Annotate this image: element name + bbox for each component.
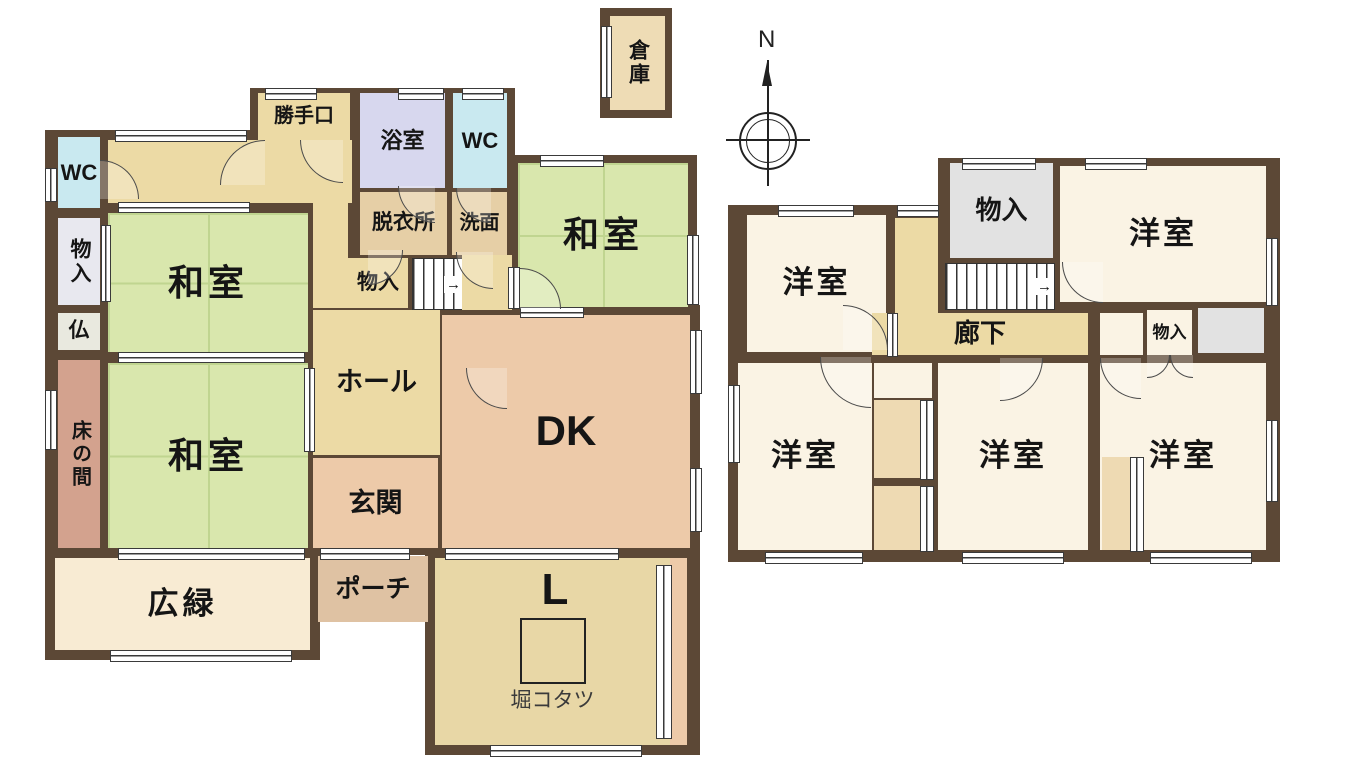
sliding-door-symbol	[118, 352, 305, 363]
room-hiroen: 広緑	[55, 558, 310, 650]
window-symbol	[45, 168, 57, 202]
closet-2f	[874, 400, 920, 478]
window-symbol	[1150, 552, 1252, 564]
window-symbol	[1085, 158, 1147, 170]
compass-arrowhead-icon	[762, 62, 772, 86]
closet-door-symbol	[920, 486, 934, 552]
closet-2f	[1102, 457, 1130, 550]
entry-door-symbol	[320, 548, 410, 560]
room-storage-2f-small: 物入	[1147, 310, 1192, 355]
window-symbol	[778, 205, 854, 217]
stairs-direction-arrow: →	[444, 276, 463, 293]
kotatsu-outline	[520, 618, 586, 684]
room-bathroom: 浴室	[360, 93, 445, 188]
window-symbol	[690, 468, 702, 532]
room-kura: 倉庫	[610, 16, 665, 110]
room-storage-1f-left: 物入	[58, 218, 100, 305]
north-label: N	[758, 26, 775, 54]
stairs-2f: →	[945, 263, 1055, 310]
window-symbol	[540, 155, 604, 167]
window-symbol	[115, 130, 247, 142]
window-symbol	[490, 745, 642, 757]
window-symbol	[687, 235, 699, 305]
stairs-direction-arrow: →	[1035, 278, 1054, 295]
sliding-door-symbol	[101, 225, 111, 302]
room-genkan: 玄関	[313, 458, 438, 548]
closet-door-zone	[874, 363, 932, 398]
closet-2f	[874, 486, 920, 550]
room-wc-1f-top: WC	[453, 93, 507, 188]
floor-plan: WC 物入 仏 床の間 勝手口 和室 和室 浴室 WC 脱衣所 洗面 物入 → …	[0, 0, 1345, 771]
strip-living-east	[670, 558, 687, 745]
window-symbol	[110, 650, 292, 662]
window-symbol	[962, 552, 1064, 564]
room-storage-2f-top: 物入	[950, 163, 1053, 258]
closet-door-symbol	[920, 400, 934, 480]
room-wc-1f-left: WC	[58, 137, 100, 208]
compass-cross-line	[726, 139, 810, 141]
window-symbol	[728, 385, 740, 463]
sliding-door-symbol	[118, 202, 250, 213]
room-washitsu-1: 和室	[108, 213, 308, 352]
compass-circle-icon	[739, 112, 797, 170]
window-symbol	[265, 88, 317, 100]
window-symbol	[1266, 420, 1278, 502]
window-symbol	[690, 330, 702, 394]
room-katteguchi: 勝手口	[258, 93, 350, 140]
closet-door-symbol	[1130, 457, 1144, 552]
room-dk: DK	[442, 315, 690, 548]
window-symbol	[765, 552, 863, 564]
door-symbol	[508, 267, 520, 309]
room-tokonoma: 床の間	[58, 360, 100, 548]
kotatsu-label: 堀コタツ	[455, 685, 650, 713]
window-symbol	[656, 565, 672, 739]
vestibule-2f	[1100, 313, 1143, 355]
room-butsuma: 仏	[58, 313, 100, 350]
stairs-1f: →	[412, 258, 464, 310]
room-corridor-2f: 廊下	[872, 313, 1088, 355]
room-washitsu-2: 和室	[108, 363, 308, 548]
sliding-door-symbol	[304, 368, 315, 452]
sliding-door-symbol	[445, 548, 619, 560]
window-symbol	[398, 88, 444, 100]
corridor-strip-vertical	[895, 218, 938, 318]
sliding-door-symbol	[887, 313, 898, 357]
window-symbol	[962, 158, 1036, 170]
living-label: L	[480, 565, 630, 615]
hall-strip-west	[313, 203, 348, 308]
storage-gray-2f	[1198, 308, 1264, 353]
sliding-door-symbol	[118, 548, 305, 560]
window-symbol	[462, 88, 504, 100]
window-symbol	[897, 205, 939, 217]
room-hall: ホール	[313, 310, 440, 455]
compass: N	[732, 26, 804, 186]
window-symbol	[45, 390, 57, 450]
window-symbol	[1266, 238, 1278, 306]
window-symbol	[601, 26, 612, 98]
room-porch: ポーチ	[318, 556, 428, 622]
